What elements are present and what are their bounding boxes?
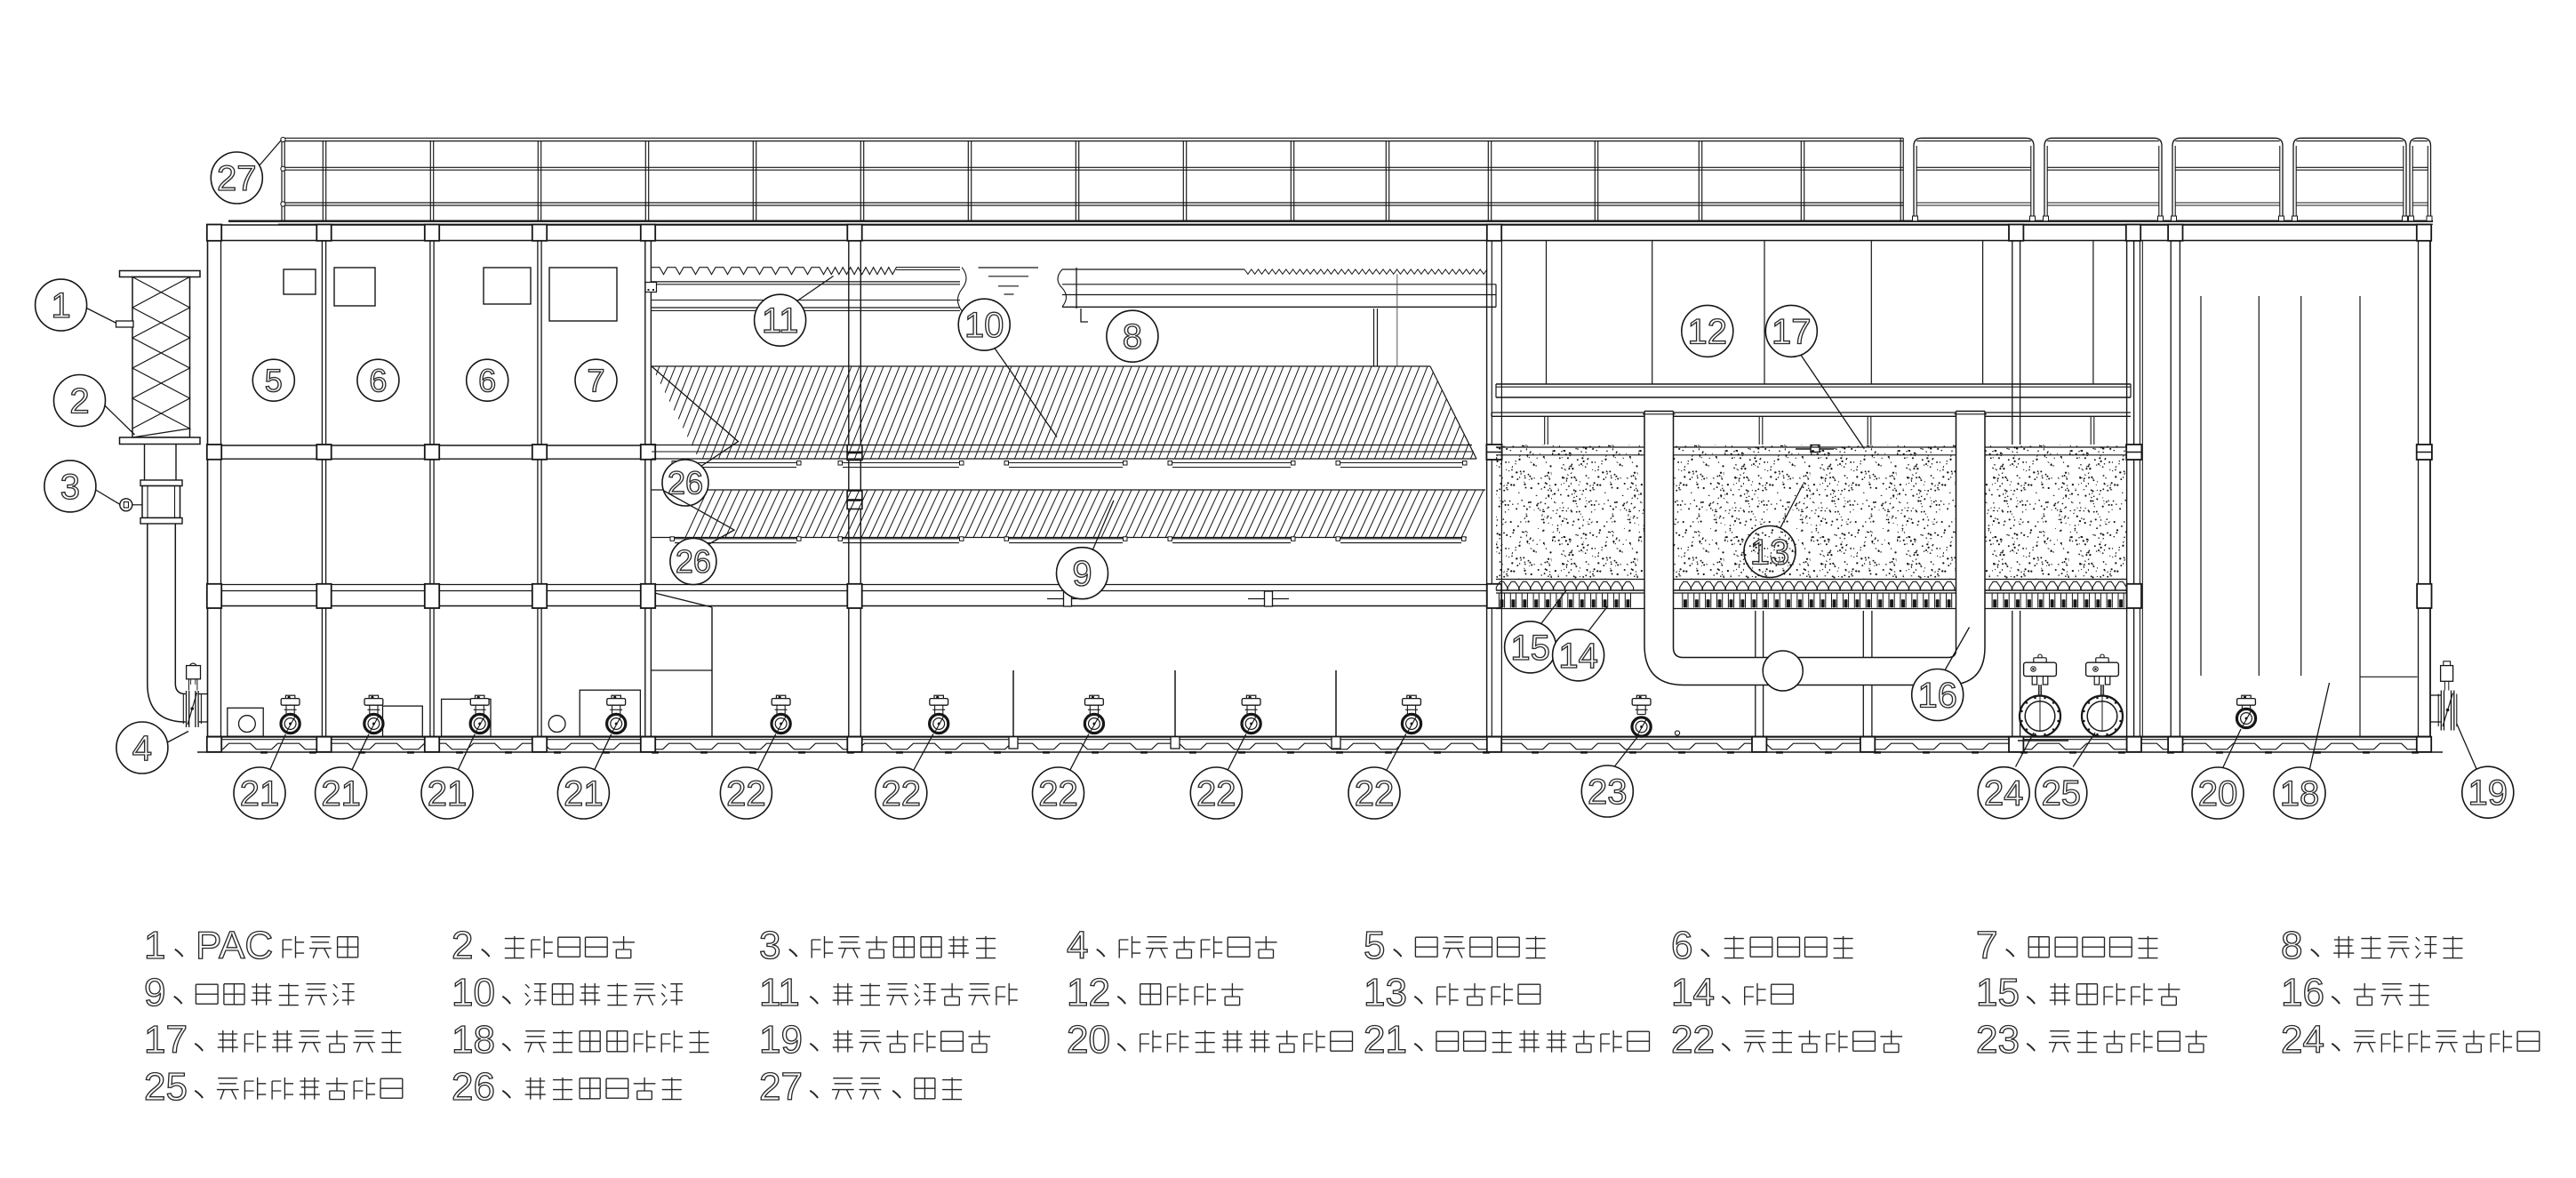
svg-text:24: 24 [1984,774,2024,813]
svg-text:3: 3 [759,924,780,967]
svg-text:21: 21 [321,774,361,813]
svg-text:21: 21 [564,774,604,813]
svg-text:25: 25 [144,1065,188,1109]
svg-text:13: 13 [1364,971,1407,1014]
svg-text:9: 9 [144,971,165,1014]
svg-text:12: 12 [1067,971,1110,1014]
svg-text:PAC: PAC [196,924,273,967]
svg-text:20: 20 [2198,774,2238,813]
svg-text:5: 5 [1364,924,1385,967]
svg-text:26: 26 [676,543,711,580]
svg-text:27: 27 [759,1065,803,1109]
svg-text:18: 18 [452,1018,495,1062]
svg-text:19: 19 [2468,773,2508,813]
svg-text:21: 21 [428,774,468,813]
svg-text:17: 17 [144,1018,188,1062]
svg-text:26: 26 [452,1065,495,1109]
svg-text:3: 3 [60,468,80,507]
svg-text:19: 19 [759,1018,803,1062]
svg-text:25: 25 [2042,774,2082,813]
svg-text:6: 6 [1671,924,1692,967]
svg-text:4: 4 [132,729,152,768]
svg-text:16: 16 [1917,677,1957,716]
svg-text:14: 14 [1558,637,1598,676]
svg-text:1: 1 [144,924,165,967]
svg-text:21: 21 [1364,1018,1407,1062]
svg-text:13: 13 [1750,533,1790,573]
svg-text:22: 22 [1355,774,1395,813]
svg-text:11: 11 [762,301,799,341]
svg-text:10: 10 [452,971,495,1014]
svg-text:7: 7 [587,362,604,398]
svg-text:15: 15 [1510,629,1550,668]
svg-text:24: 24 [2281,1018,2324,1062]
svg-text:27: 27 [217,159,257,198]
svg-text:22: 22 [882,774,922,813]
svg-text:4: 4 [1067,924,1088,967]
svg-text:22: 22 [1196,774,1236,813]
svg-text:9: 9 [1072,555,1092,594]
svg-text:7: 7 [1976,924,1997,967]
svg-text:22: 22 [1671,1018,1715,1062]
svg-text:22: 22 [1038,774,1078,813]
svg-text:22: 22 [726,774,766,813]
svg-text:17: 17 [1772,312,1812,351]
svg-text:6: 6 [369,362,387,398]
svg-text:20: 20 [1067,1018,1110,1062]
svg-text:5: 5 [265,362,283,398]
svg-text:16: 16 [2281,971,2324,1014]
svg-text:1: 1 [51,286,70,325]
svg-text:2: 2 [69,382,89,421]
svg-text:11: 11 [759,971,800,1014]
svg-text:10: 10 [964,306,1004,345]
svg-text:6: 6 [478,362,496,398]
svg-text:2: 2 [452,924,473,967]
svg-text:8: 8 [2281,924,2302,967]
svg-text:15: 15 [1976,971,2020,1014]
svg-text:8: 8 [1123,317,1142,357]
svg-text:23: 23 [1588,773,1628,812]
svg-text:23: 23 [1976,1018,2020,1062]
svg-text:14: 14 [1671,971,1715,1014]
svg-text:18: 18 [2280,774,2320,813]
svg-text:21: 21 [240,774,280,813]
svg-text:12: 12 [1688,312,1728,351]
